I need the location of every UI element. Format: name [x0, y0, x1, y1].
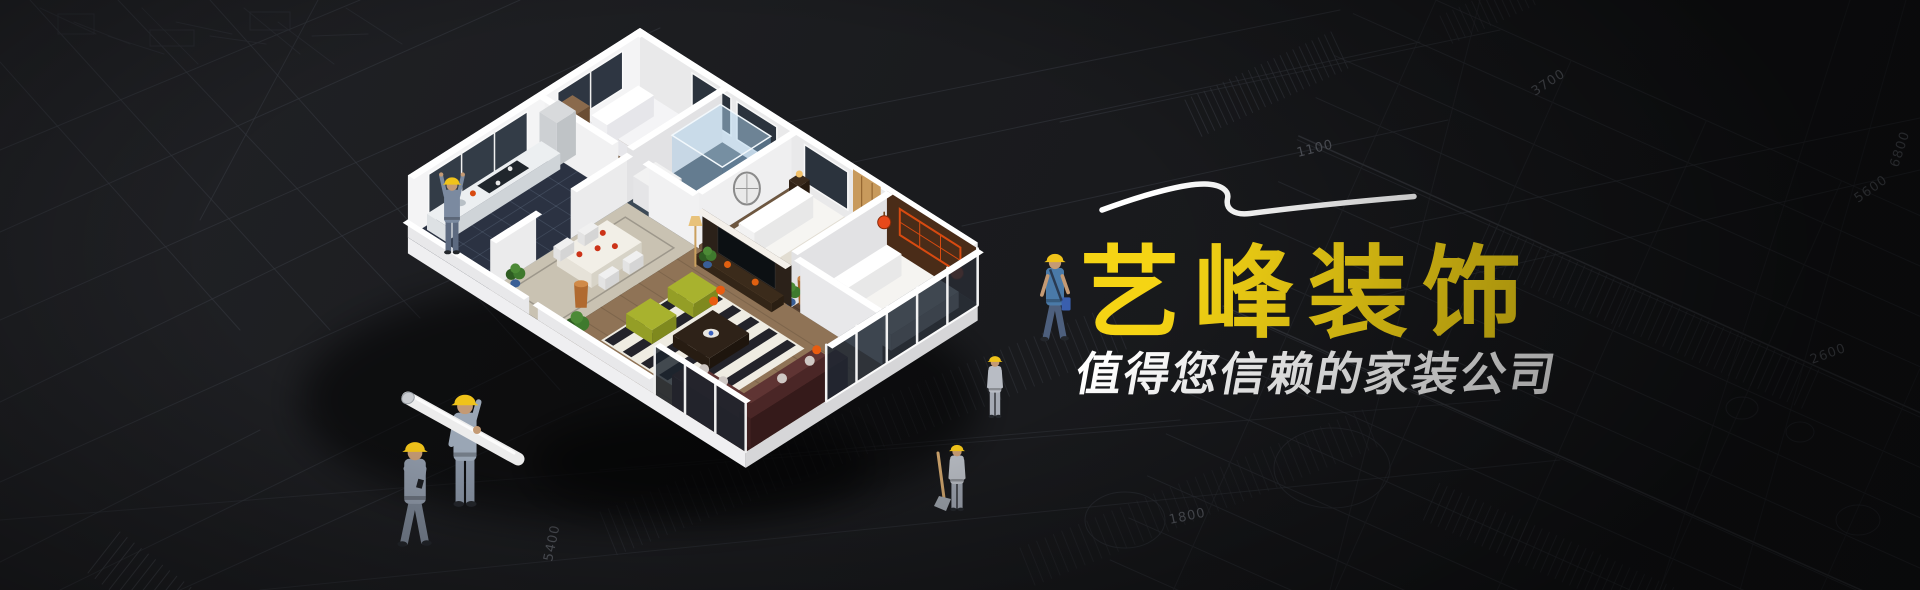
worker-pipe-carrier: [451, 395, 478, 507]
worker-supervisor: [987, 356, 1002, 418]
worker-wall-installer: [439, 172, 465, 254]
worker-delivery-worker: [1040, 254, 1070, 342]
shovel-prop: [934, 453, 951, 511]
hero-banner: 3700 1100 5600 2600 6800 1800 5400 艺峰装饰 …: [0, 0, 1920, 590]
worker-shovel-worker: [949, 445, 965, 511]
worker-figures: [0, 0, 1920, 590]
worker-walking-inspector: [397, 442, 431, 547]
